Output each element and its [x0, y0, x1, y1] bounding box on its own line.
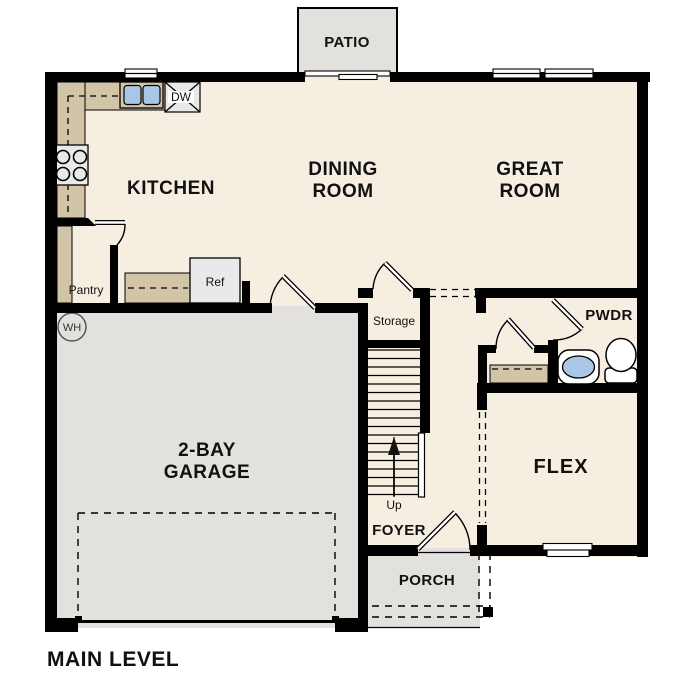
wall-ref-stub: [242, 281, 250, 303]
wall-top-left: [45, 72, 305, 82]
plan-title: MAIN LEVEL: [47, 648, 179, 671]
pwdr-label: PWDR: [585, 307, 632, 324]
kitchen-label: KITCHEN: [127, 178, 215, 199]
wall-kitchen-garage: [45, 303, 272, 313]
patio-label: PATIO: [324, 34, 370, 51]
sink-basin-right: [143, 86, 160, 105]
garage-door-post-right: [332, 616, 339, 623]
wall-pwdr-flex: [477, 383, 648, 393]
wall-garage-bottom-left: [45, 618, 78, 632]
wall-stair-right: [420, 288, 430, 433]
wall-right: [637, 72, 648, 557]
garage-label-line2: GARAGE: [164, 462, 250, 483]
wall-pantry-top: [45, 218, 88, 226]
greatroom-label-line2: ROOM: [499, 181, 560, 202]
wall-pantry-right: [110, 245, 118, 303]
wall-storage-bottom: [358, 340, 420, 348]
wall-closet-left: [478, 345, 487, 383]
garage-label-line1: 2-BAY: [178, 440, 236, 461]
pwdr-toilet: [605, 339, 637, 384]
wall-closet-top-a: [487, 345, 496, 353]
up-label: Up: [386, 498, 402, 512]
pwdr-sink: [558, 350, 599, 384]
dining-label-line1: DINING: [308, 159, 378, 180]
garage-door-post-left: [75, 616, 82, 623]
wall-greatroom-bottom-a: [358, 288, 373, 298]
porch-label: PORCH: [399, 572, 455, 589]
floor-plan: DW Ref WH: [0, 0, 687, 687]
pantry-label: Pantry: [69, 283, 104, 297]
wall-left: [45, 72, 57, 632]
kitchen-window: [125, 69, 157, 78]
flex-label: FLEX: [533, 456, 588, 478]
floor-plan-svg: DW Ref WH: [0, 0, 687, 687]
dining-label-line2: ROOM: [312, 181, 373, 202]
wall-pwdr-left: [548, 340, 558, 383]
sink-basin-left: [124, 86, 141, 105]
greatroom-window-right: [545, 69, 593, 78]
refrigerator-label: Ref: [206, 275, 225, 289]
kitchen-counter-bottom: [125, 273, 190, 303]
wall-hall-stub-top: [476, 298, 486, 313]
wall-garage-right: [358, 303, 368, 632]
foyer-label: FOYER: [372, 522, 426, 539]
dishwasher-label: DW: [171, 90, 192, 104]
garage-door-line: [78, 620, 335, 623]
greatroom-window-left: [493, 69, 540, 78]
wall-foyer-bottom-left: [368, 545, 418, 556]
porch-post: [483, 607, 493, 617]
wall-greatroom-bottom-c: [475, 288, 648, 298]
wall-closet-top-b: [534, 345, 548, 353]
water-heater-label: WH: [63, 322, 81, 334]
stair-handrail: [419, 433, 425, 497]
wall-flex-stub-upper: [477, 393, 487, 410]
storage-label: Storage: [373, 314, 415, 328]
wall-dining-garage: [315, 303, 368, 313]
wall-flex-stub-lower: [477, 525, 487, 547]
greatroom-label-line1: GREAT: [496, 159, 564, 180]
flex-window: [543, 544, 592, 557]
closet-shelf: [490, 365, 548, 383]
